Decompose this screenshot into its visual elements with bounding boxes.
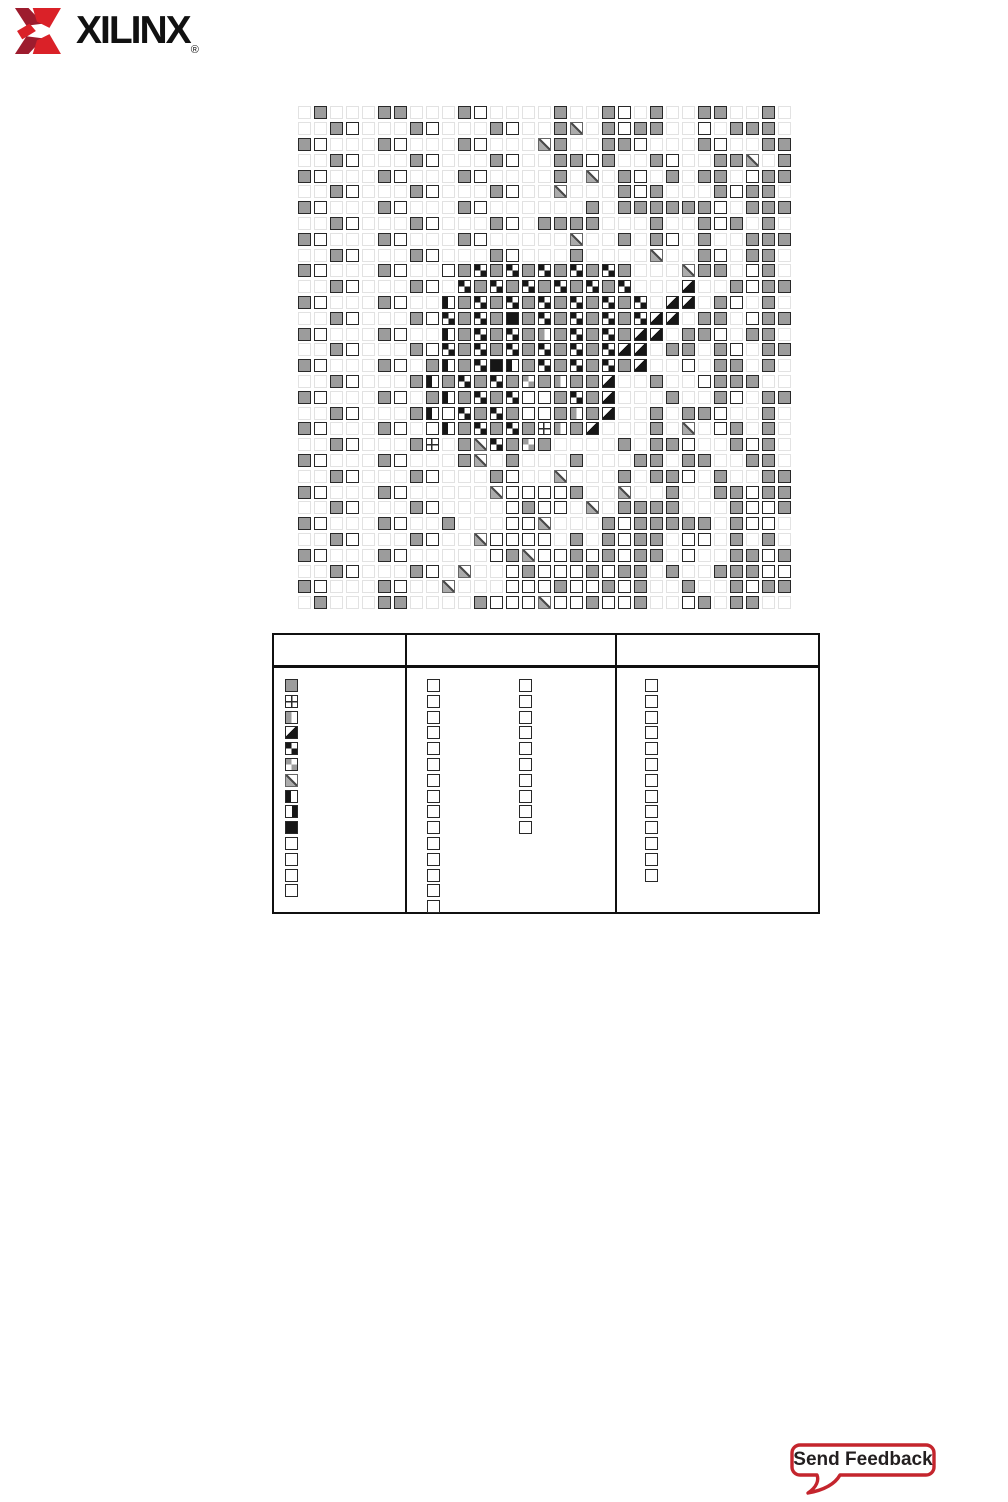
white-ball <box>618 517 631 530</box>
empty-cell <box>666 217 679 230</box>
empty-cell <box>762 596 775 609</box>
empty-cell <box>314 122 327 135</box>
empty-cell <box>442 596 455 609</box>
gray-ball <box>730 501 743 514</box>
empty-cell <box>298 596 311 609</box>
gray-ball <box>378 233 391 246</box>
empty-cell <box>314 312 327 325</box>
empty-cell <box>458 185 471 198</box>
empty-cell <box>618 391 631 404</box>
empty-cell <box>362 486 375 499</box>
white-ball <box>506 122 519 135</box>
empty-cell <box>698 580 711 593</box>
gray-ball <box>586 407 599 420</box>
empty-cell <box>506 106 519 119</box>
gray-ball <box>378 138 391 151</box>
white-ball <box>506 565 519 578</box>
empty-cell <box>362 565 375 578</box>
diag-black-ball <box>586 422 599 435</box>
white-ball <box>426 501 439 514</box>
white-ball <box>314 328 327 341</box>
white-ball <box>506 185 519 198</box>
gray-ball <box>522 312 535 325</box>
gray-ball <box>570 533 583 546</box>
empty-cell <box>298 501 311 514</box>
white-ball <box>554 549 567 562</box>
empty-cell <box>490 233 503 246</box>
empty-cell <box>666 280 679 293</box>
gray-ball <box>730 517 743 530</box>
gray-ball <box>506 438 519 451</box>
empty-cell <box>394 122 407 135</box>
empty-cell <box>538 233 551 246</box>
empty-cell <box>426 580 439 593</box>
white-ball <box>645 774 658 787</box>
gray-ball <box>330 185 343 198</box>
slash-ball <box>474 533 487 546</box>
gray-ball <box>378 454 391 467</box>
slash-ball <box>458 565 471 578</box>
gray-ball <box>730 422 743 435</box>
white-ball <box>666 154 679 167</box>
gray-ball <box>778 201 791 214</box>
white-ball <box>634 185 647 198</box>
gray-ball <box>426 359 439 372</box>
empty-cell <box>778 517 791 530</box>
gray-ball <box>666 486 679 499</box>
empty-cell <box>602 249 615 262</box>
empty-cell <box>698 438 711 451</box>
empty-cell <box>522 470 535 483</box>
empty-cell <box>346 422 359 435</box>
gray-ball <box>746 185 759 198</box>
gray-ball <box>730 375 743 388</box>
empty-cell <box>714 596 727 609</box>
gray-ball <box>490 470 503 483</box>
empty-cell <box>730 233 743 246</box>
empty-cell <box>490 454 503 467</box>
empty-cell <box>314 154 327 167</box>
white-ball <box>314 138 327 151</box>
white-ball <box>538 407 551 420</box>
checker-black-ball <box>634 312 647 325</box>
quad-cross-ball <box>285 695 298 708</box>
empty-cell <box>362 296 375 309</box>
half-black-left-ball <box>426 375 439 388</box>
empty-cell <box>778 217 791 230</box>
empty-cell <box>730 201 743 214</box>
gray-ball <box>554 264 567 277</box>
xilinx-logo: XILINX ® <box>10 8 199 59</box>
gray-ball <box>298 549 311 562</box>
empty-cell <box>394 375 407 388</box>
gray-ball <box>522 565 535 578</box>
empty-cell <box>362 122 375 135</box>
empty-cell <box>442 249 455 262</box>
empty-cell <box>730 407 743 420</box>
legend-column-divider-2 <box>615 635 617 912</box>
white-ball <box>538 391 551 404</box>
white-ball <box>746 280 759 293</box>
gray-ball <box>618 264 631 277</box>
empty-cell <box>426 138 439 151</box>
black-ball <box>506 312 519 325</box>
gray-ball <box>442 517 455 530</box>
empty-cell <box>394 501 407 514</box>
empty-cell <box>586 454 599 467</box>
white-ball <box>394 391 407 404</box>
checker-black-ball <box>506 422 519 435</box>
empty-cell <box>650 138 663 151</box>
empty-cell <box>410 596 423 609</box>
white-ball <box>522 580 535 593</box>
gray-ball <box>378 391 391 404</box>
gray-ball <box>746 249 759 262</box>
empty-cell <box>682 185 695 198</box>
empty-cell <box>442 185 455 198</box>
gray-ball <box>554 217 567 230</box>
gray-ball <box>714 106 727 119</box>
empty-cell <box>682 486 695 499</box>
gray-ball <box>298 580 311 593</box>
empty-cell <box>410 422 423 435</box>
empty-cell <box>778 185 791 198</box>
white-ball <box>506 217 519 230</box>
gray-ball <box>410 407 423 420</box>
white-ball <box>346 249 359 262</box>
empty-cell <box>778 328 791 341</box>
empty-cell <box>394 407 407 420</box>
empty-cell <box>538 106 551 119</box>
gray-ball <box>522 422 535 435</box>
empty-cell <box>298 122 311 135</box>
white-ball <box>522 391 535 404</box>
empty-cell <box>762 154 775 167</box>
gray-ball <box>522 264 535 277</box>
white-ball <box>746 517 759 530</box>
gray-ball <box>714 296 727 309</box>
slash-ball <box>586 501 599 514</box>
gray-ball <box>506 549 519 562</box>
checker-black-ball <box>458 280 471 293</box>
empty-cell <box>474 580 487 593</box>
white-ball <box>314 486 327 499</box>
send-feedback-button[interactable]: Send Feedback <box>788 1443 940 1495</box>
empty-cell <box>490 201 503 214</box>
empty-cell <box>298 106 311 119</box>
empty-cell <box>682 375 695 388</box>
empty-cell <box>394 470 407 483</box>
half-black-left-ball <box>285 790 298 803</box>
gray-ball <box>330 280 343 293</box>
gray-ball <box>314 596 327 609</box>
gray-ball <box>522 343 535 356</box>
half-gray-left-ball <box>285 711 298 724</box>
empty-cell <box>634 375 647 388</box>
checker-black-ball <box>285 742 298 755</box>
white-ball <box>346 343 359 356</box>
empty-cell <box>362 185 375 198</box>
checker-black-ball <box>442 312 455 325</box>
white-ball <box>346 407 359 420</box>
white-ball <box>645 869 658 882</box>
gray-ball <box>554 391 567 404</box>
checker-gray-ball <box>522 438 535 451</box>
empty-cell <box>394 249 407 262</box>
empty-cell <box>682 122 695 135</box>
empty-cell <box>362 391 375 404</box>
half-gray-left-ball <box>538 328 551 341</box>
empty-cell <box>330 359 343 372</box>
empty-cell <box>314 565 327 578</box>
empty-cell <box>362 470 375 483</box>
white-ball <box>314 517 327 530</box>
checker-black-ball <box>570 359 583 372</box>
empty-cell <box>362 106 375 119</box>
gray-ball <box>458 138 471 151</box>
empty-cell <box>666 122 679 135</box>
white-ball <box>506 486 519 499</box>
gray-ball <box>458 359 471 372</box>
empty-cell <box>746 138 759 151</box>
diag-black-ball <box>650 328 663 341</box>
gray-ball <box>458 438 471 451</box>
empty-cell <box>458 501 471 514</box>
white-ball <box>519 821 532 834</box>
white-ball <box>618 596 631 609</box>
empty-cell <box>650 264 663 277</box>
gray-ball <box>666 343 679 356</box>
empty-cell <box>362 596 375 609</box>
gray-ball <box>762 486 775 499</box>
checker-black-ball <box>506 328 519 341</box>
empty-cell <box>698 296 711 309</box>
gray-ball <box>586 328 599 341</box>
empty-cell <box>426 106 439 119</box>
checker-black-ball <box>474 359 487 372</box>
white-ball <box>285 869 298 882</box>
gray-ball <box>330 217 343 230</box>
checker-gray-ball <box>522 375 535 388</box>
empty-cell <box>346 486 359 499</box>
gray-ball <box>378 359 391 372</box>
empty-cell <box>570 138 583 151</box>
gray-ball <box>330 533 343 546</box>
gray-ball <box>378 549 391 562</box>
empty-cell <box>378 249 391 262</box>
checker-black-ball <box>458 407 471 420</box>
gray-ball <box>762 359 775 372</box>
empty-cell <box>330 596 343 609</box>
empty-cell <box>714 580 727 593</box>
white-ball <box>645 711 658 724</box>
empty-cell <box>410 170 423 183</box>
white-ball <box>645 695 658 708</box>
white-ball <box>474 106 487 119</box>
empty-cell <box>346 596 359 609</box>
empty-cell <box>346 296 359 309</box>
empty-cell <box>666 407 679 420</box>
white-ball <box>554 486 567 499</box>
gray-ball <box>650 501 663 514</box>
empty-cell <box>442 549 455 562</box>
gray-ball <box>458 343 471 356</box>
empty-cell <box>474 565 487 578</box>
empty-cell <box>442 201 455 214</box>
white-ball <box>519 758 532 771</box>
gray-ball <box>586 343 599 356</box>
empty-cell <box>410 549 423 562</box>
gray-ball <box>778 470 791 483</box>
gray-ball <box>698 249 711 262</box>
xilinx-wordmark: XILINX <box>76 8 190 54</box>
empty-cell <box>570 501 583 514</box>
gray-ball <box>762 454 775 467</box>
gray-ball <box>762 106 775 119</box>
empty-cell <box>298 154 311 167</box>
empty-cell <box>426 170 439 183</box>
white-ball <box>519 679 532 692</box>
checker-black-ball <box>570 264 583 277</box>
gray-ball <box>650 422 663 435</box>
gray-ball <box>746 565 759 578</box>
gray-ball <box>698 217 711 230</box>
checker-gray-ball <box>285 758 298 771</box>
empty-cell <box>394 185 407 198</box>
empty-cell <box>298 533 311 546</box>
empty-cell <box>618 422 631 435</box>
empty-cell <box>458 122 471 135</box>
gray-ball <box>378 106 391 119</box>
gray-ball <box>762 470 775 483</box>
gray-ball <box>650 517 663 530</box>
white-ball <box>602 596 615 609</box>
empty-cell <box>746 533 759 546</box>
gray-ball <box>762 201 775 214</box>
slash-ball <box>538 138 551 151</box>
empty-cell <box>474 154 487 167</box>
empty-cell <box>586 138 599 151</box>
gray-ball <box>698 454 711 467</box>
gray-ball <box>698 312 711 325</box>
gray-ball <box>490 296 503 309</box>
gray-ball <box>682 407 695 420</box>
gray-ball <box>634 549 647 562</box>
empty-cell <box>554 438 567 451</box>
checker-black-ball <box>474 422 487 435</box>
empty-cell <box>362 580 375 593</box>
empty-cell <box>442 454 455 467</box>
empty-cell <box>442 470 455 483</box>
empty-cell <box>586 122 599 135</box>
gray-ball <box>586 596 599 609</box>
half-black-left-ball <box>442 391 455 404</box>
gray-ball <box>682 343 695 356</box>
white-ball <box>426 217 439 230</box>
white-ball <box>682 359 695 372</box>
gray-ball <box>666 470 679 483</box>
gray-ball <box>490 122 503 135</box>
empty-cell <box>602 170 615 183</box>
white-ball <box>618 549 631 562</box>
empty-cell <box>378 565 391 578</box>
white-ball <box>394 201 407 214</box>
gray-ball <box>394 106 407 119</box>
empty-cell <box>330 328 343 341</box>
empty-cell <box>330 580 343 593</box>
empty-cell <box>746 391 759 404</box>
empty-cell <box>730 454 743 467</box>
empty-cell <box>474 517 487 530</box>
gray-ball <box>554 106 567 119</box>
empty-cell <box>442 565 455 578</box>
empty-cell <box>410 106 423 119</box>
checker-black-ball <box>506 264 519 277</box>
gray-ball <box>330 501 343 514</box>
empty-cell <box>778 407 791 420</box>
gray-ball <box>778 138 791 151</box>
gray-ball <box>298 391 311 404</box>
empty-cell <box>714 501 727 514</box>
gray-ball <box>410 501 423 514</box>
gray-ball <box>378 422 391 435</box>
white-ball <box>682 596 695 609</box>
empty-cell <box>602 185 615 198</box>
slash-ball <box>570 233 583 246</box>
white-ball <box>346 154 359 167</box>
empty-cell <box>346 359 359 372</box>
empty-cell <box>698 185 711 198</box>
gray-ball <box>538 217 551 230</box>
gray-ball <box>778 580 791 593</box>
gray-ball <box>698 517 711 530</box>
empty-cell <box>778 106 791 119</box>
empty-cell <box>474 549 487 562</box>
empty-cell <box>362 454 375 467</box>
slash-ball <box>538 596 551 609</box>
gray-ball <box>762 407 775 420</box>
white-ball <box>634 170 647 183</box>
gray-ball <box>650 533 663 546</box>
white-ball <box>314 422 327 435</box>
gray-ball <box>458 328 471 341</box>
gray-ball <box>314 106 327 119</box>
gray-ball <box>666 565 679 578</box>
white-ball <box>645 758 658 771</box>
empty-cell <box>666 106 679 119</box>
empty-cell <box>666 328 679 341</box>
diag-black-ball <box>666 296 679 309</box>
gray-ball <box>458 170 471 183</box>
empty-cell <box>362 264 375 277</box>
checker-black-ball <box>554 280 567 293</box>
empty-cell <box>490 580 503 593</box>
gray-ball <box>330 565 343 578</box>
gray-ball <box>714 264 727 277</box>
empty-cell <box>730 312 743 325</box>
empty-cell <box>410 328 423 341</box>
empty-cell <box>666 264 679 277</box>
checker-black-ball <box>570 312 583 325</box>
empty-cell <box>410 486 423 499</box>
diag-black-ball <box>666 312 679 325</box>
empty-cell <box>730 138 743 151</box>
gray-ball <box>410 122 423 135</box>
gray-ball <box>762 249 775 262</box>
empty-cell <box>634 233 647 246</box>
gray-ball <box>298 233 311 246</box>
empty-cell <box>490 517 503 530</box>
